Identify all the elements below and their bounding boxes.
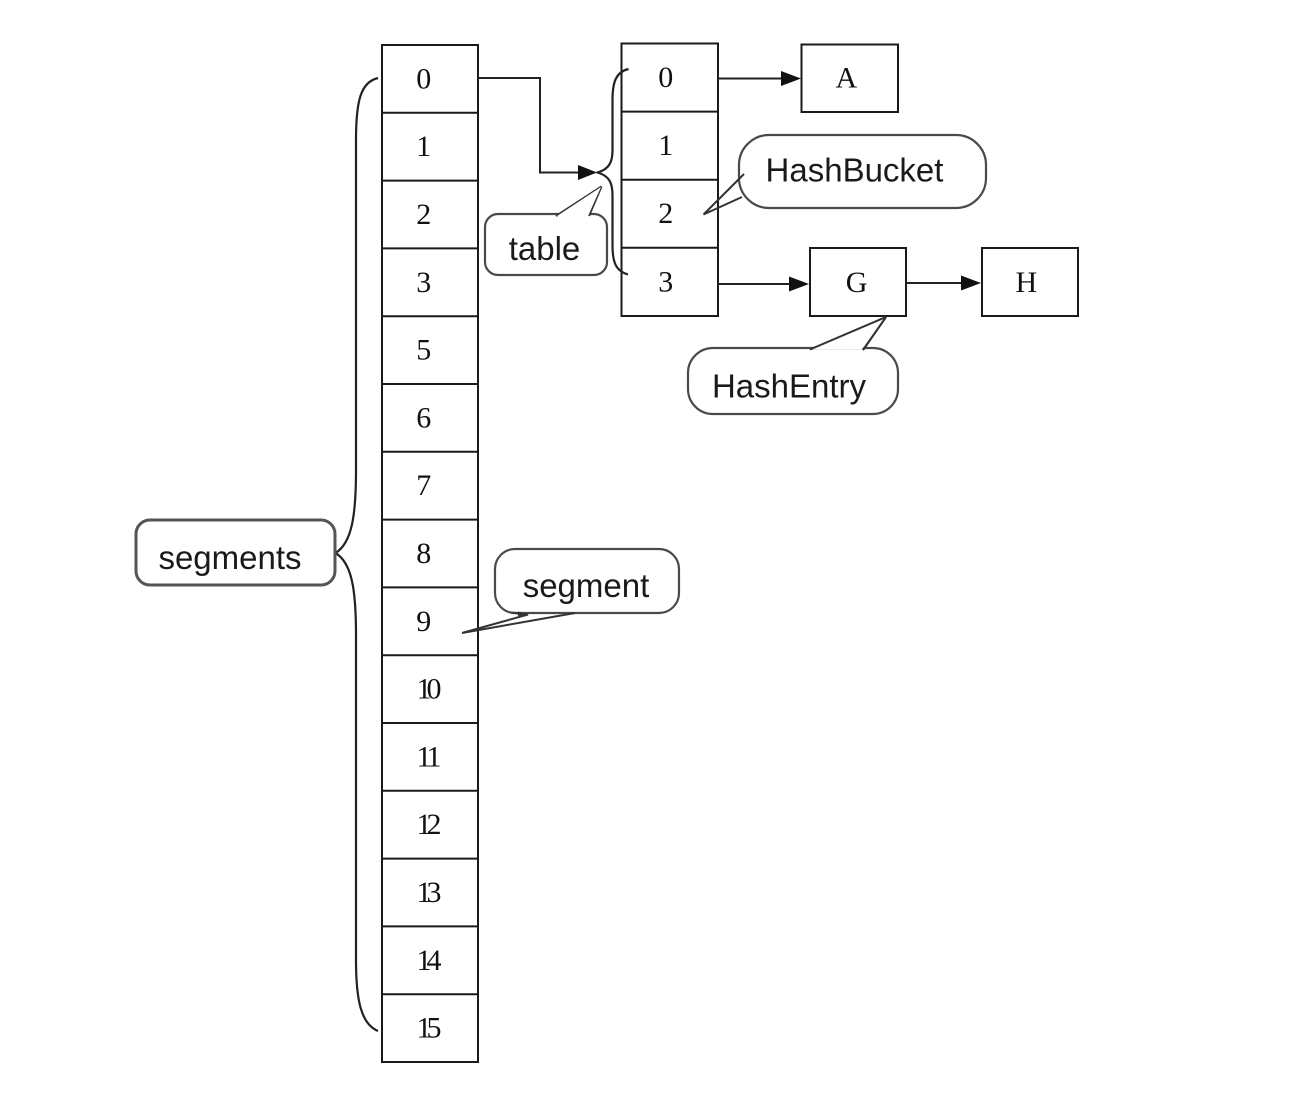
svg-text:H: H bbox=[1016, 266, 1038, 299]
svg-text:segment: segment bbox=[523, 567, 650, 604]
svg-text:2: 2 bbox=[658, 197, 673, 230]
svg-text:5: 5 bbox=[416, 334, 431, 367]
svg-text:11: 11 bbox=[417, 740, 442, 773]
svg-text:1: 1 bbox=[658, 129, 673, 162]
svg-text:HashEntry: HashEntry bbox=[712, 368, 867, 405]
svg-text:13: 13 bbox=[417, 876, 442, 909]
svg-text:2: 2 bbox=[416, 198, 431, 231]
svg-text:HashBucket: HashBucket bbox=[766, 152, 944, 189]
svg-text:table: table bbox=[509, 230, 581, 267]
svg-text:6: 6 bbox=[416, 401, 431, 434]
svg-text:14: 14 bbox=[417, 944, 442, 977]
svg-text:15: 15 bbox=[417, 1012, 442, 1045]
svg-text:segments: segments bbox=[158, 539, 301, 576]
svg-text:3: 3 bbox=[416, 266, 431, 299]
svg-text:10: 10 bbox=[417, 673, 442, 706]
svg-text:3: 3 bbox=[658, 265, 673, 298]
svg-text:9: 9 bbox=[416, 605, 431, 638]
svg-text:A: A bbox=[836, 62, 858, 95]
svg-text:12: 12 bbox=[417, 808, 442, 841]
svg-text:G: G bbox=[846, 266, 868, 299]
svg-text:1: 1 bbox=[416, 130, 431, 163]
svg-text:0: 0 bbox=[658, 61, 673, 94]
svg-text:8: 8 bbox=[416, 537, 431, 570]
svg-text:0: 0 bbox=[416, 62, 431, 95]
svg-text:7: 7 bbox=[416, 469, 431, 502]
